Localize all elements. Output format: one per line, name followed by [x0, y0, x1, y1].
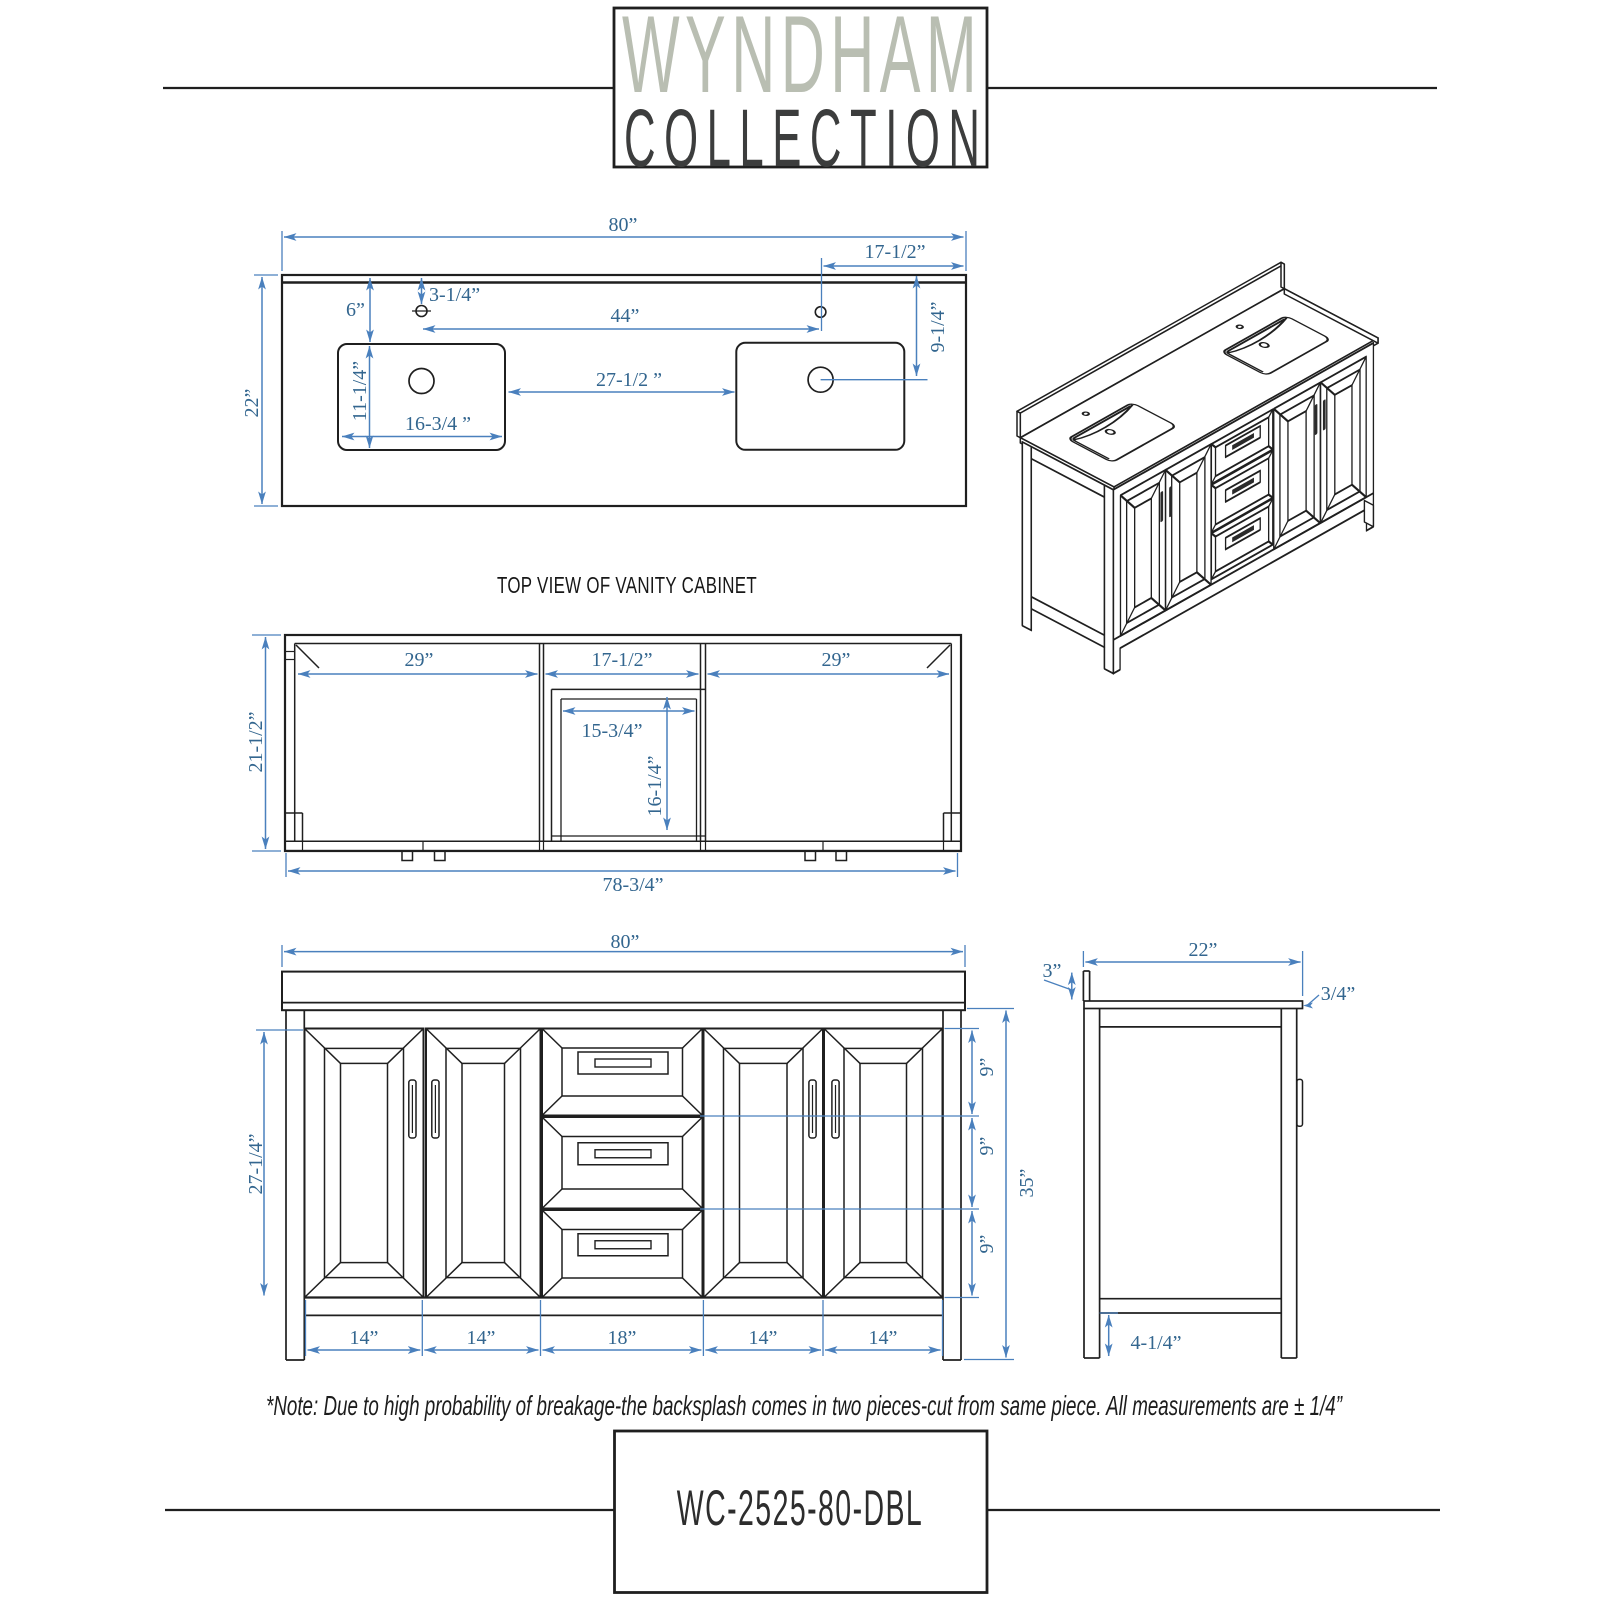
svg-text:80”: 80” [609, 214, 638, 236]
svg-text:16-1/4”: 16-1/4” [644, 755, 666, 816]
svg-text:4-1/4”: 4-1/4” [1130, 1332, 1181, 1354]
svg-text:80”: 80” [611, 931, 640, 953]
svg-text:WC-2525-80-DBL: WC-2525-80-DBL [677, 1480, 923, 1537]
svg-text:14”: 14” [350, 1327, 379, 1349]
svg-text:22”: 22” [241, 389, 263, 418]
svg-text:18”: 18” [608, 1327, 637, 1349]
svg-text:29”: 29” [822, 649, 851, 671]
svg-text:9”: 9” [976, 1058, 998, 1077]
svg-text:22”: 22” [1189, 939, 1218, 961]
svg-text:15-3/4”: 15-3/4” [581, 720, 642, 742]
svg-text:14”: 14” [467, 1327, 496, 1349]
svg-text:35”: 35” [1016, 1169, 1038, 1198]
svg-text:3/4”: 3/4” [1321, 983, 1355, 1005]
svg-text:6”: 6” [346, 299, 365, 321]
svg-text:29”: 29” [405, 649, 434, 671]
svg-text:*Note: Due to high probability: *Note: Due to high probability of breaka… [266, 1390, 1343, 1421]
svg-text:3”: 3” [1043, 960, 1062, 982]
svg-text:21-1/2”: 21-1/2” [245, 711, 267, 772]
svg-text:27-1/2 ”: 27-1/2 ” [596, 369, 662, 391]
svg-text:9”: 9” [976, 1137, 998, 1156]
svg-text:14”: 14” [869, 1327, 898, 1349]
svg-text:14”: 14” [749, 1327, 778, 1349]
svg-text:TOP VIEW OF VANITY CABINET: TOP VIEW OF VANITY CABINET [497, 572, 757, 598]
svg-text:44”: 44” [611, 305, 640, 327]
svg-text:11-1/4”: 11-1/4” [349, 361, 371, 421]
svg-text:3-1/4”: 3-1/4” [429, 284, 480, 306]
svg-text:9-1/4”: 9-1/4” [927, 301, 949, 352]
svg-text:9”: 9” [976, 1235, 998, 1254]
svg-text:16-3/4 ”: 16-3/4 ” [405, 413, 471, 435]
svg-text:COLLECTION: COLLECTION [624, 92, 989, 183]
svg-text:17-1/2”: 17-1/2” [591, 649, 652, 671]
svg-text:78-3/4”: 78-3/4” [602, 874, 663, 896]
svg-text:17-1/2”: 17-1/2” [864, 241, 925, 263]
svg-text:27-1/4”: 27-1/4” [245, 1133, 267, 1194]
